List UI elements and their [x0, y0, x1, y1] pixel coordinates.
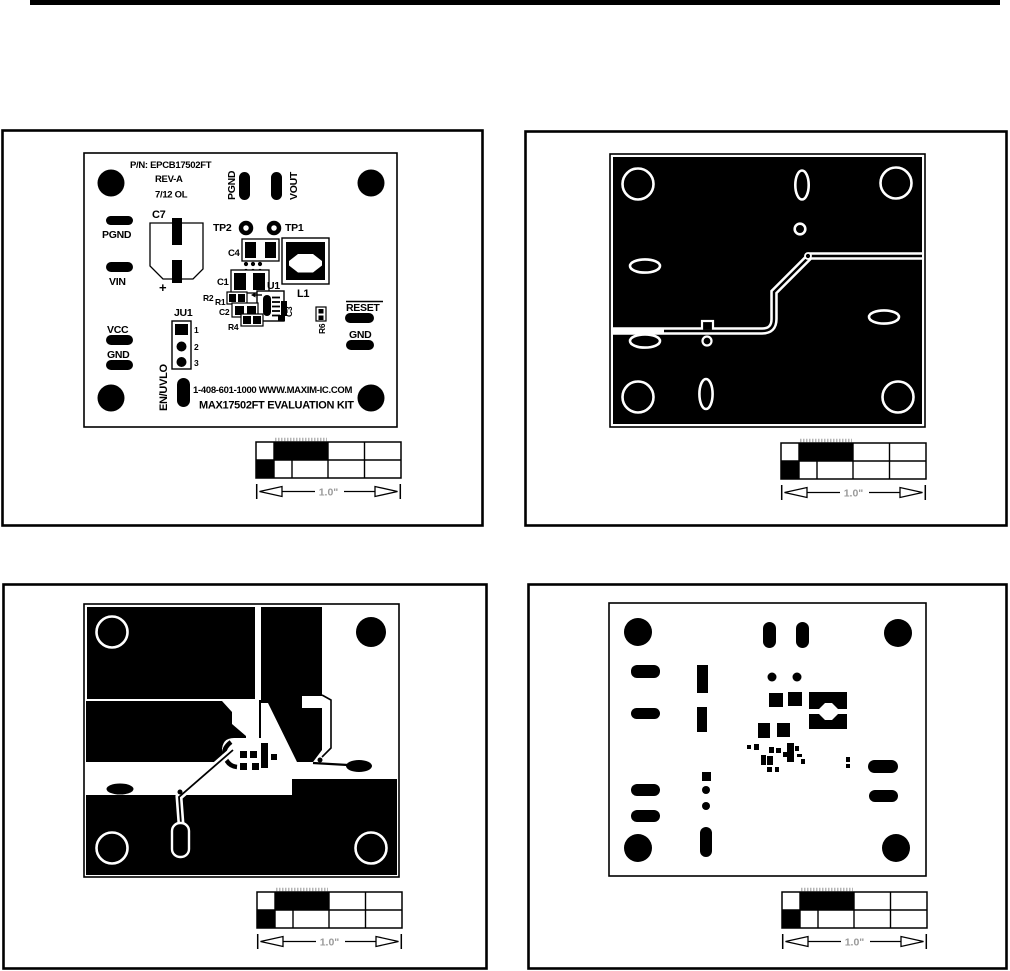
c2-label: C2	[219, 307, 230, 317]
c3-label: C3	[284, 306, 294, 317]
tp2-testpoint	[241, 223, 251, 233]
c7-plate	[172, 218, 182, 245]
mounting-hole	[882, 834, 910, 862]
drill-hit	[356, 617, 386, 647]
gnd-right-pad	[346, 340, 374, 350]
pad-oval	[346, 760, 372, 772]
scale-length-label: 1.0"	[844, 488, 864, 500]
ju1-label: JU1	[174, 307, 193, 319]
ju1-pin2-pad	[177, 342, 187, 352]
ju1-pin2-number: 2	[194, 342, 199, 352]
pgnd-left-label: PGND	[102, 229, 132, 241]
pad	[261, 743, 268, 768]
vin-label: VIN	[109, 276, 126, 288]
pgnd-left-pad	[106, 216, 133, 225]
pad	[240, 763, 247, 770]
panel-solder-mask: 1.0"	[527, 583, 1008, 971]
c7-plate	[172, 260, 182, 283]
gnd-left-pad	[106, 360, 133, 370]
pad-opening	[631, 784, 660, 796]
gnd-right-label: GND	[349, 329, 372, 341]
l1-label: L1	[297, 288, 309, 300]
scale-length-label: 1.0"	[320, 937, 340, 949]
panel-top-copper: 1.0"	[2, 583, 488, 971]
via-opening	[768, 673, 777, 682]
tp1-label: TP1	[285, 222, 304, 234]
gnd-left-label: GND	[107, 349, 130, 361]
pcb-board: P/N: EPCB17502FT REV-A 7/12 OL PGND VOUT…	[84, 153, 397, 427]
u1-body-pad	[263, 295, 271, 316]
pgnd-top-pad	[239, 172, 250, 200]
datasheet-page: P/N: EPCB17502FT REV-A 7/12 OL PGND VOUT…	[0, 0, 1010, 971]
pad-opening	[869, 790, 898, 802]
r1-label: R1	[215, 297, 226, 307]
pour-notch	[302, 696, 322, 708]
mounting-hole	[884, 619, 912, 647]
pad-opening	[758, 723, 770, 738]
via-opening	[702, 802, 710, 810]
vout-pad	[271, 172, 282, 200]
pad-opening	[796, 622, 809, 648]
pad-opening	[697, 665, 708, 693]
panel-silkscreen: P/N: EPCB17502FT REV-A 7/12 OL PGND VOUT…	[1, 129, 484, 527]
c7-polarity-plus: +	[159, 280, 167, 295]
vout-label: VOUT	[288, 171, 300, 200]
en-uvlo-pad	[177, 378, 190, 407]
mounting-hole	[358, 170, 385, 197]
c4-pad	[265, 242, 276, 258]
pad	[252, 763, 259, 770]
reset-label: RESET	[346, 302, 380, 314]
pad	[271, 754, 277, 760]
pad-opening	[631, 810, 660, 822]
r4-pad	[253, 316, 261, 324]
silkscreen-figure: P/N: EPCB17502FT REV-A 7/12 OL PGND VOUT…	[1, 129, 484, 527]
ju1-pin3-pad	[177, 357, 187, 367]
pad	[250, 751, 257, 758]
page-top-rule	[30, 0, 1000, 5]
pour-middle-left	[86, 701, 222, 762]
via	[805, 253, 811, 259]
r4-pad	[243, 316, 251, 324]
via	[178, 790, 183, 795]
pad-opening	[777, 723, 790, 737]
mounting-hole	[358, 385, 385, 412]
via-opening	[793, 673, 802, 682]
smd-pad	[702, 321, 713, 331]
contact-label: 1-408-601-1000 WWW.MAXIM-IC.COM	[193, 385, 352, 396]
panel-bottom-copper: 1.0"	[524, 130, 1008, 527]
pad-opening	[702, 772, 711, 781]
en-uvlo-label: EN/UVLO	[158, 363, 170, 411]
r6-label: R6	[317, 323, 327, 334]
c1-pad	[253, 273, 265, 290]
r1-pad	[238, 294, 245, 302]
bottom-copper-figure: 1.0"	[524, 130, 1008, 527]
pad-opening	[788, 692, 802, 706]
pad-opening	[868, 760, 898, 773]
scale-length-label: 1.0"	[319, 487, 339, 499]
pad-opening	[697, 707, 707, 732]
scale-bar: 1.0"	[781, 441, 926, 501]
scale-bar: 1.0"	[256, 440, 401, 500]
pgnd-top-label: PGND	[226, 170, 238, 200]
scale-cell-black	[256, 460, 274, 478]
c7-label: C7	[152, 209, 166, 221]
pcb-board	[84, 604, 399, 877]
pour-top-left	[87, 607, 255, 699]
part-number-label: P/N: EPCB17502FT	[130, 160, 212, 171]
ju1-pin3-number: 3	[194, 358, 199, 368]
r6-pad	[319, 309, 324, 314]
via	[703, 337, 712, 346]
rev-label: REV-A	[155, 174, 183, 185]
scale-bar: 1.0"	[257, 890, 402, 950]
pad-opening	[700, 827, 712, 857]
c4-label: C4	[228, 248, 241, 259]
tp1-testpoint	[269, 223, 279, 233]
pad-opening	[769, 693, 783, 707]
ju1-pin1-number: 1	[194, 325, 199, 335]
via	[318, 758, 323, 763]
date-label: 7/12 OL	[155, 190, 188, 201]
u1-label: U1	[267, 280, 280, 292]
center-cluster	[222, 738, 284, 776]
c1-label: C1	[217, 277, 230, 288]
ju1-pin1-pad	[175, 324, 188, 335]
copper-pour	[613, 157, 922, 424]
pcb-board	[610, 154, 925, 427]
kit-name-label: MAX17502FT EVALUATION KIT	[199, 400, 354, 412]
tp2-label: TP2	[213, 222, 232, 234]
pad-opening	[631, 708, 660, 719]
scale-cell-black	[274, 442, 328, 460]
mounting-hole	[98, 385, 125, 412]
pad-slot	[172, 823, 189, 857]
r1-pad	[229, 294, 236, 302]
pad-oval	[107, 784, 134, 795]
c4-pad	[245, 242, 256, 258]
scale-bar: 1.0"	[782, 890, 927, 950]
pcb-board	[609, 603, 926, 876]
via-opening	[702, 786, 710, 794]
mounting-hole	[624, 834, 652, 862]
mounting-hole	[98, 170, 125, 197]
pad	[240, 751, 247, 758]
solder-mask-figure: 1.0"	[527, 583, 1008, 971]
r4-label: R4	[228, 322, 239, 332]
scale-length-label: 1.0"	[845, 937, 865, 949]
c1-pad	[234, 273, 246, 290]
pad-opening	[631, 665, 660, 678]
mounting-hole	[624, 618, 652, 646]
top-copper-figure: 1.0"	[2, 583, 488, 971]
r2-label: R2	[203, 293, 214, 303]
reset-pad	[345, 313, 374, 323]
vcc-label: VCC	[107, 324, 129, 336]
vin-pad	[106, 262, 133, 272]
vcc-pad	[106, 335, 133, 345]
r6-pad	[319, 316, 324, 321]
pad-opening	[763, 622, 776, 648]
